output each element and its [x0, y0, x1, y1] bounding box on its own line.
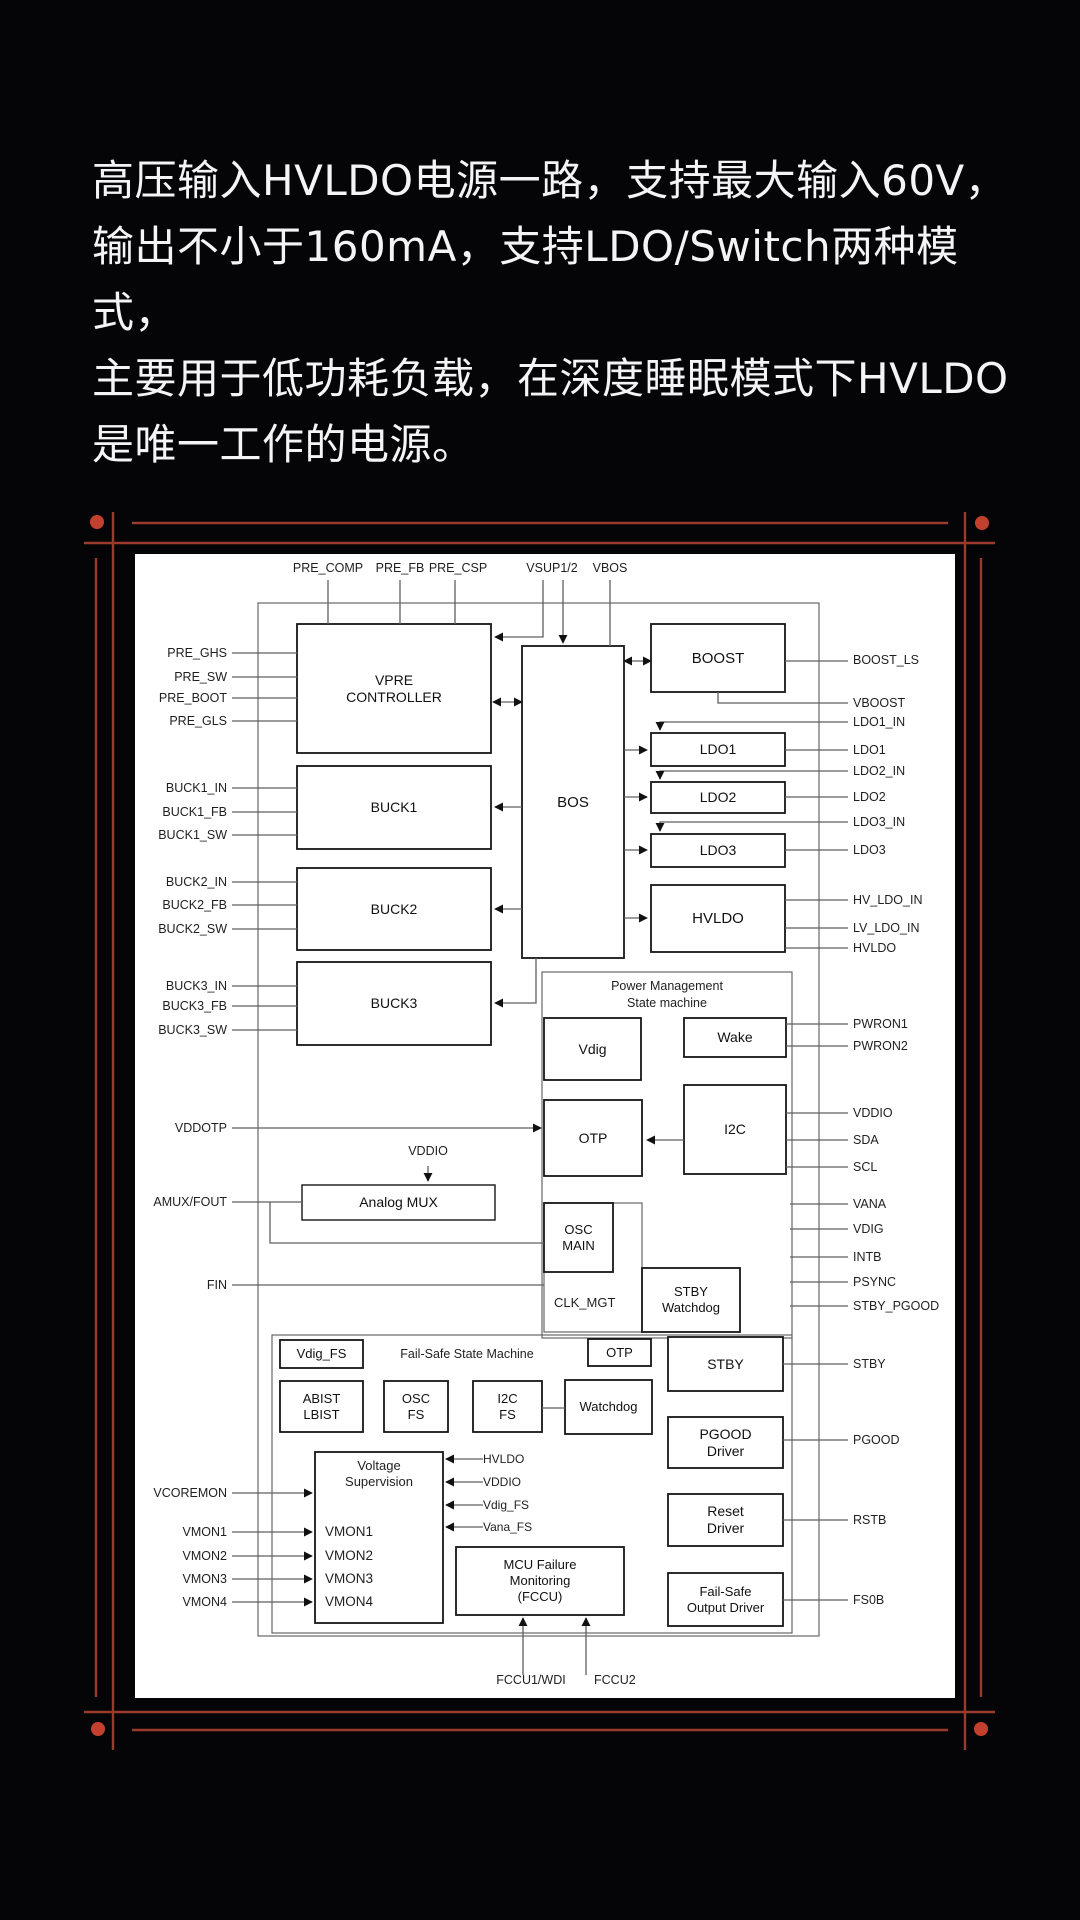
pin-label-right: LDO2 — [853, 789, 886, 805]
vs-input-label: VDDIO — [483, 1474, 521, 1490]
block-hvldo: HVLDO — [651, 885, 785, 952]
block-boost: BOOST — [651, 624, 785, 692]
pin-label-right: VDIG — [853, 1221, 884, 1237]
pin-label-right: LV_LDO_IN — [853, 920, 919, 936]
block-ldo2: LDO2 — [651, 782, 785, 813]
vmon-row: VMON3 — [325, 1571, 373, 1587]
vs-input-label: HVLDO — [483, 1451, 524, 1467]
block-vpre: VPRE CONTROLLER — [297, 624, 491, 753]
block-buck2: BUCK2 — [297, 868, 491, 950]
pin-label-left: AMUX/FOUT — [153, 1194, 227, 1210]
block-watchdog: Watchdog — [565, 1380, 652, 1434]
pin-label-right: VDDIO — [853, 1105, 893, 1121]
pin-label-left: VMON2 — [183, 1548, 227, 1564]
block-mcu: MCU Failure Monitoring (FCCU) — [456, 1547, 624, 1615]
pin-label-right: PWRON1 — [853, 1016, 908, 1032]
pin-label-right: PSYNC — [853, 1274, 896, 1290]
pin-label-right: STBY_PGOOD — [853, 1298, 939, 1314]
pin-label-right: INTB — [853, 1249, 881, 1265]
pin-label-left: BUCK1_FB — [162, 804, 227, 820]
block-buck1: BUCK1 — [297, 766, 491, 849]
block-fs-vdig: Vdig_FS — [280, 1340, 363, 1368]
block-analog-mux: Analog MUX — [302, 1185, 495, 1220]
block-otp: OTP — [544, 1100, 642, 1176]
power-management-title: Power Management State machine — [542, 978, 792, 1012]
pin-label-right: HVLDO — [853, 940, 896, 956]
pin-label-right: FS0B — [853, 1592, 884, 1608]
block-diagram-panel: PRE_COMP PRE_FB PRE_CSP VSUP1/2 VBOS PRE… — [135, 554, 955, 1698]
pin-label-left: VMON3 — [183, 1571, 227, 1587]
pin-label-right: LDO3 — [853, 842, 886, 858]
pin-label-left: BUCK3_IN — [166, 978, 227, 994]
pin-label-right: SDA — [853, 1132, 879, 1148]
vmon-row: VMON4 — [325, 1594, 373, 1610]
pin-label-right: LDO3_IN — [853, 814, 905, 830]
pin-label-left: VCOREMON — [153, 1485, 227, 1501]
fccu1-label: FCCU1/WDI — [475, 1672, 587, 1689]
pin-label-left: BUCK2_FB — [162, 897, 227, 913]
block-fs-otp: OTP — [588, 1339, 651, 1366]
pin-label-top: VBOS — [565, 560, 655, 576]
pin-label-right: VANA — [853, 1196, 886, 1212]
pin-label-right: PWRON2 — [853, 1038, 908, 1054]
pin-label-left: VMON1 — [183, 1524, 227, 1540]
pin-label-left: PRE_GHS — [167, 645, 227, 661]
voltage-supervision-title: Voltage Supervision — [315, 1458, 443, 1490]
block-failsafe-output: Fail-Safe Output Driver — [668, 1573, 783, 1626]
page: 高压输入HVLDO电源一路，支持最大输入60V， 输出不小于160mA，支持LD… — [0, 0, 1080, 1920]
failsafe-title: Fail-Safe State Machine — [371, 1346, 563, 1363]
block-osc-main: OSC MAIN — [544, 1203, 613, 1272]
pin-label-left: BUCK1_SW — [158, 827, 227, 843]
block-i2c: I2C — [684, 1085, 786, 1174]
vs-input-label: Vana_FS — [483, 1519, 532, 1535]
pin-label-right: VBOOST — [853, 695, 905, 711]
block-reset-driver: Reset Driver — [668, 1494, 783, 1546]
block-i2c-fs: I2C FS — [473, 1381, 542, 1432]
block-pgood-driver: PGOOD Driver — [668, 1417, 783, 1468]
block-ldo3: LDO3 — [651, 834, 785, 867]
pin-label-left: BUCK2_IN — [166, 874, 227, 890]
block-clk-mgt: CLK_MGT — [554, 1295, 615, 1311]
block-stby: STBY — [668, 1337, 783, 1391]
pin-label-left: VMON4 — [183, 1594, 227, 1610]
pin-label-left: BUCK3_FB — [162, 998, 227, 1014]
pin-label-left: BUCK3_SW — [158, 1022, 227, 1038]
pin-label-left: BUCK1_IN — [166, 780, 227, 796]
pin-label-left: VDDOTP — [175, 1120, 227, 1136]
vmon-row: VMON2 — [325, 1548, 373, 1564]
pin-label-right: STBY — [853, 1356, 886, 1372]
pin-label-left: PRE_GLS — [169, 713, 227, 729]
vddio-feed-label: VDDIO — [388, 1143, 468, 1160]
vmon-row: VMON1 — [325, 1524, 373, 1540]
block-abist: ABIST LBIST — [280, 1381, 363, 1432]
pin-label-top: PRE_CSP — [413, 560, 503, 576]
pin-label-right: BOOST_LS — [853, 652, 919, 668]
block-bos: BOS — [522, 646, 624, 958]
block-stby-watchdog: STBY Watchdog — [642, 1268, 740, 1332]
block-buck3: BUCK3 — [297, 962, 491, 1045]
pin-label-right: HV_LDO_IN — [853, 892, 922, 908]
vs-input-label: Vdig_FS — [483, 1497, 529, 1513]
pin-label-right: SCL — [853, 1159, 877, 1175]
block-vdig: Vdig — [544, 1018, 641, 1080]
pin-label-right: LDO1_IN — [853, 714, 905, 730]
block-ldo1: LDO1 — [651, 733, 785, 766]
pin-label-left: BUCK2_SW — [158, 921, 227, 937]
pin-label-right: LDO1 — [853, 742, 886, 758]
pin-label-right: PGOOD — [853, 1432, 900, 1448]
pin-label-left: FIN — [207, 1277, 227, 1293]
pin-label-left: PRE_BOOT — [159, 690, 227, 706]
block-wake: Wake — [684, 1018, 786, 1057]
pin-label-left: PRE_SW — [174, 669, 227, 685]
pin-label-right: RSTB — [853, 1512, 886, 1528]
pin-label-right: LDO2_IN — [853, 763, 905, 779]
fccu2-label: FCCU2 — [594, 1672, 636, 1689]
block-osc-fs: OSC FS — [384, 1381, 448, 1432]
